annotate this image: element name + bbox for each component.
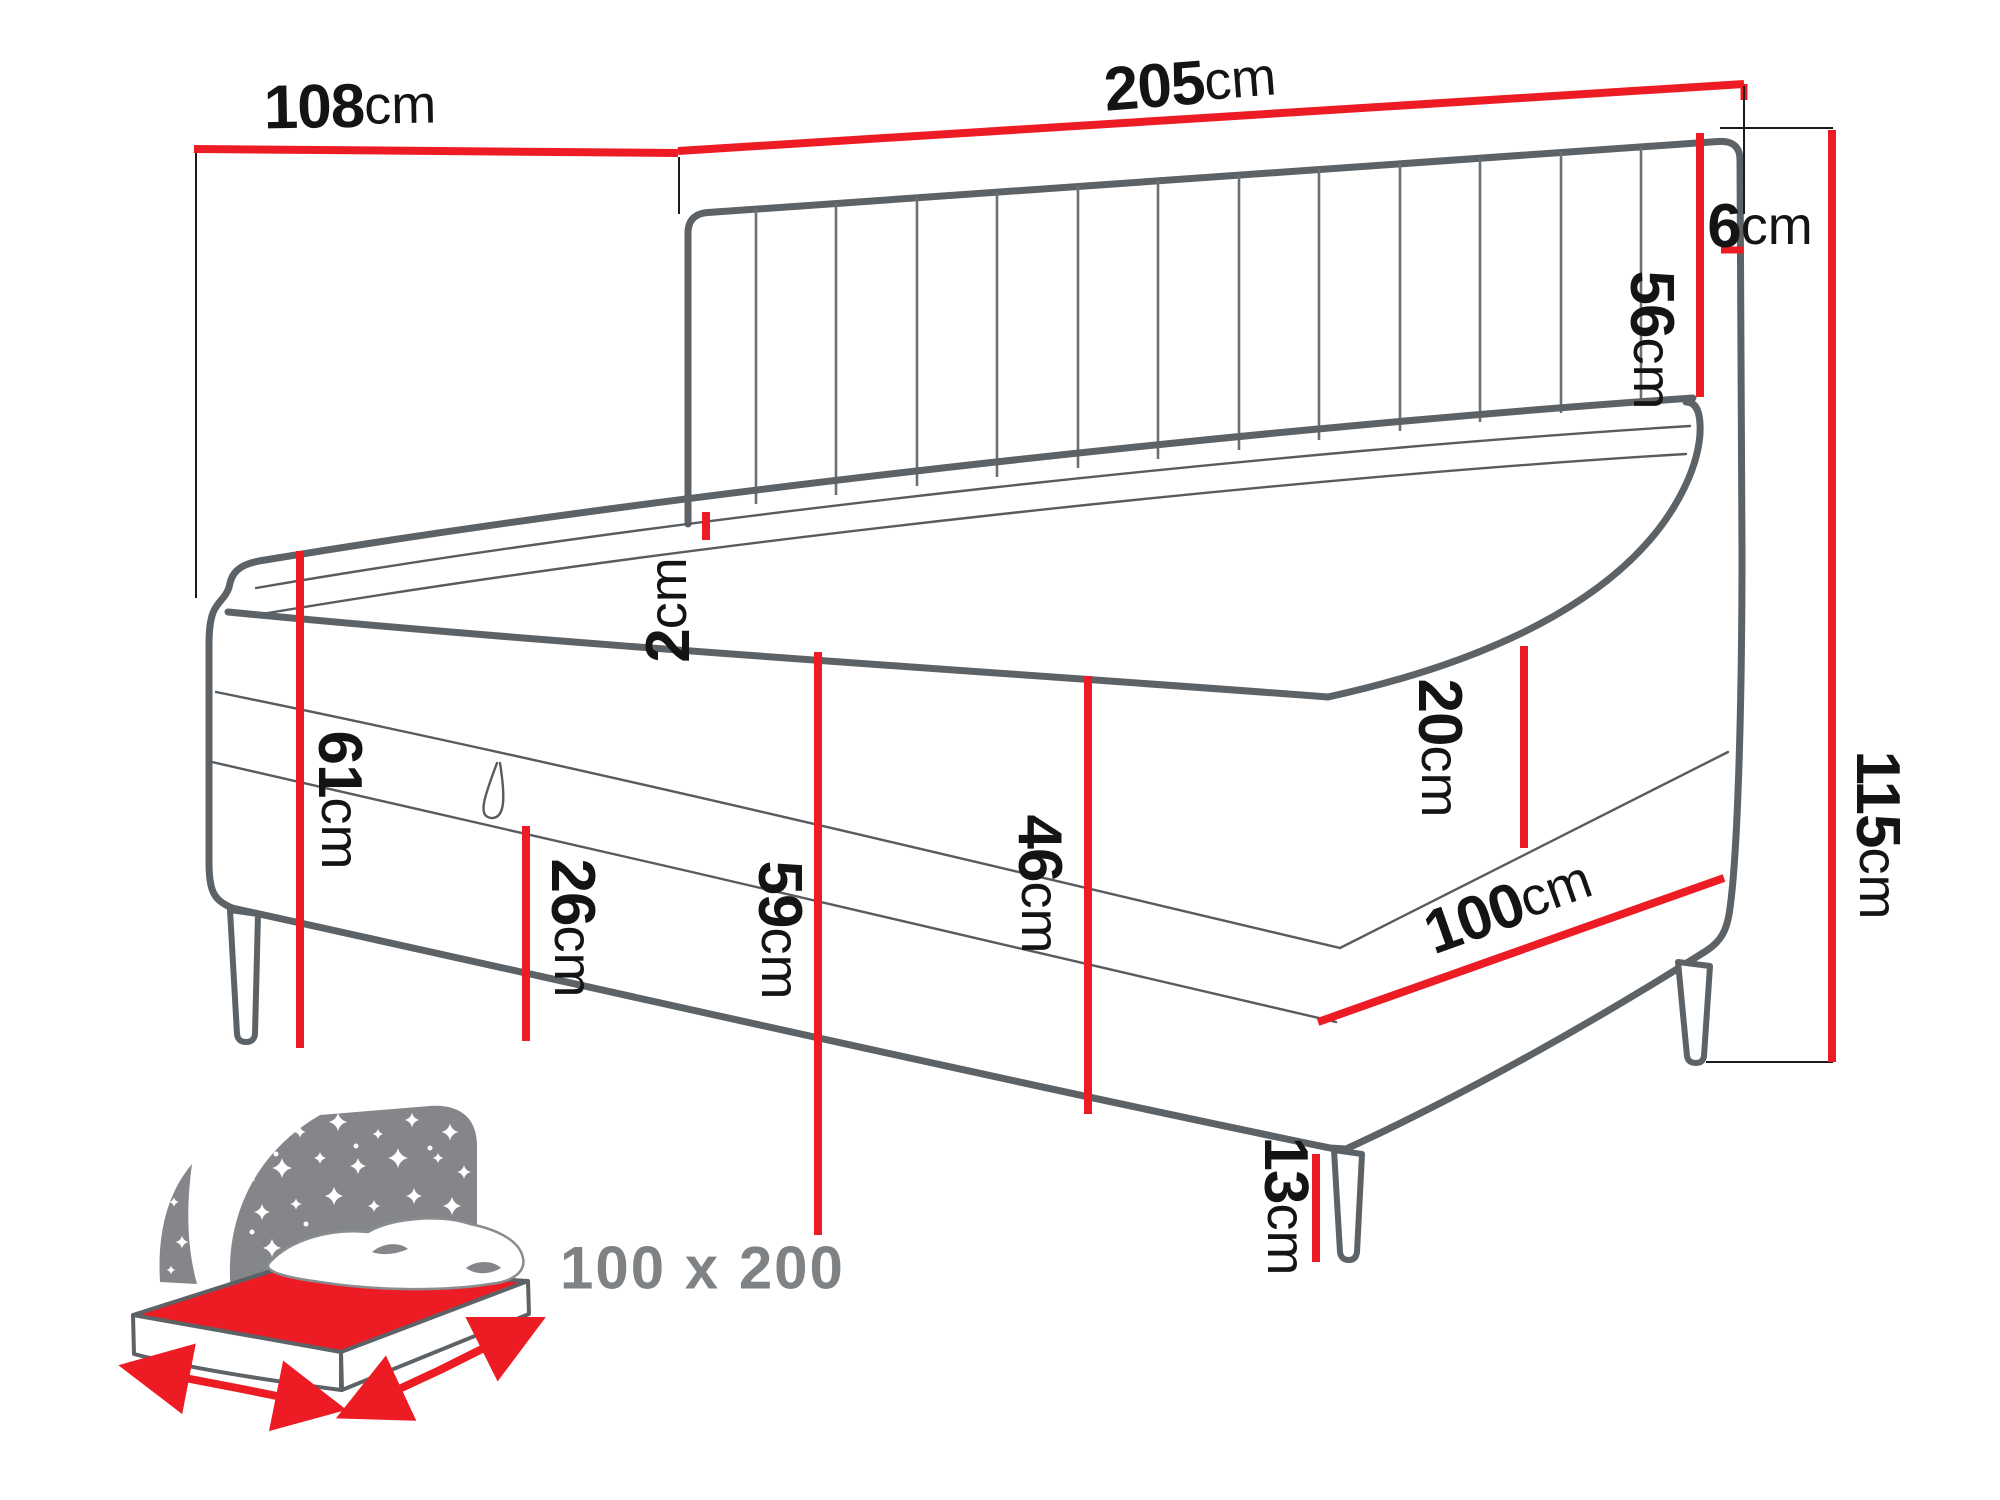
mattress-front-rim (228, 612, 1328, 697)
label-59: 59cm (746, 861, 815, 1000)
label-26: 26cm (539, 859, 608, 998)
label-108: 108cm (263, 70, 437, 142)
rear-right-leg (1678, 962, 1710, 1063)
diagram-page: 108cm 205cm 6cm 56cm 115cm 2cm 61cm 26cm… (0, 0, 2000, 1500)
front-left-leg (230, 910, 258, 1042)
bed-dimension-diagram: 108cm 205cm 6cm 56cm 115cm 2cm 61cm 26cm… (0, 0, 2000, 1500)
dim-line-108 (194, 149, 678, 153)
sleep-bed-icon: 100 x 200 (133, 1106, 845, 1410)
label-20: 20cm (1406, 679, 1475, 818)
curtain-sliver-icon (160, 1164, 197, 1284)
label-46: 46cm (1006, 815, 1075, 954)
topper-seam-upper (256, 426, 1690, 588)
bed-drawing (196, 141, 1742, 1260)
label-56: 56cm (1618, 271, 1687, 410)
storage-handle (483, 763, 503, 818)
mattress-back-rim (265, 398, 1693, 560)
front-corner-leg (1334, 1150, 1362, 1260)
label-6: 6cm (1707, 192, 1812, 261)
label-115: 115cm (1844, 750, 1913, 919)
label-2: 2cm (634, 557, 703, 662)
bed-right-and-foot-edge (1346, 552, 1742, 1149)
headboard-outline (688, 141, 1742, 552)
topper-seam-lower (250, 454, 1686, 616)
label-61: 61cm (306, 731, 375, 870)
mattress-size-badge: 100 x 200 (560, 1235, 845, 1302)
label-13: 13cm (1252, 1137, 1321, 1276)
mattress-foot-rim (1328, 402, 1700, 697)
